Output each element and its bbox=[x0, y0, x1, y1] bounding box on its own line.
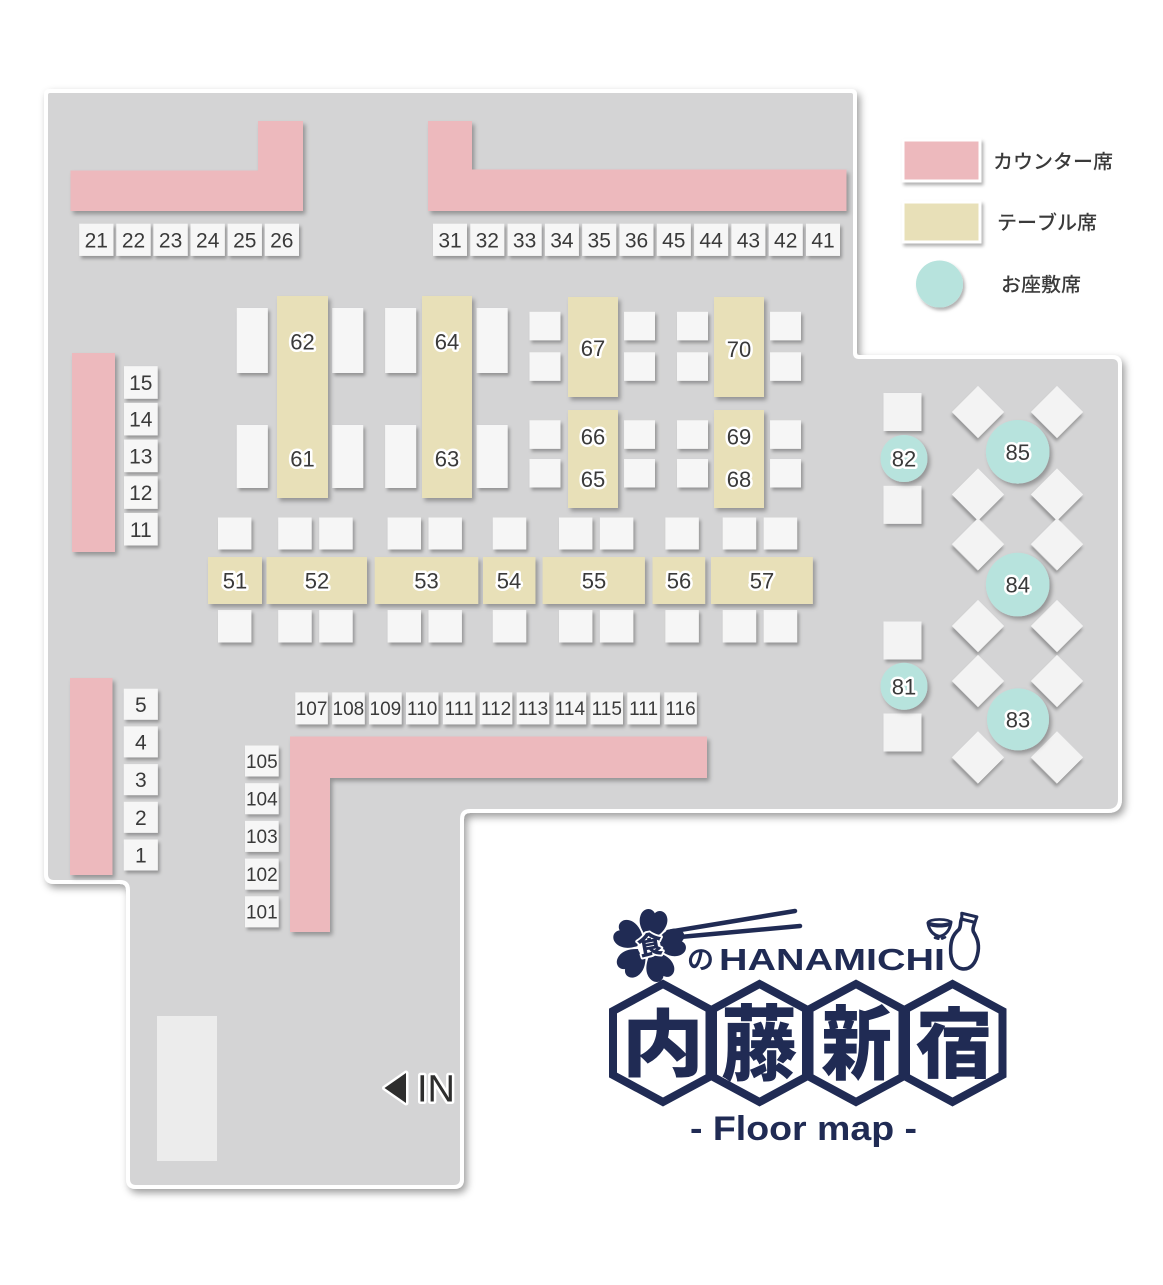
svg-text:81: 81 bbox=[892, 674, 916, 699]
svg-text:43: 43 bbox=[737, 229, 760, 252]
svg-text:62: 62 bbox=[290, 330, 314, 355]
svg-text:114: 114 bbox=[555, 699, 586, 720]
svg-text:11: 11 bbox=[130, 519, 152, 542]
svg-text:112: 112 bbox=[481, 699, 511, 720]
svg-text:52: 52 bbox=[305, 569, 329, 594]
svg-text:34: 34 bbox=[550, 229, 574, 252]
svg-text:23: 23 bbox=[159, 229, 182, 252]
svg-text:3: 3 bbox=[135, 769, 147, 792]
svg-text:HANAMICHI: HANAMICHI bbox=[719, 942, 945, 977]
svg-text:33: 33 bbox=[513, 229, 536, 252]
svg-text:111: 111 bbox=[445, 699, 474, 720]
svg-text:13: 13 bbox=[129, 445, 152, 468]
svg-text:54: 54 bbox=[497, 569, 521, 594]
svg-text:84: 84 bbox=[1005, 573, 1029, 598]
svg-text:42: 42 bbox=[774, 229, 797, 252]
svg-text:63: 63 bbox=[435, 447, 459, 472]
svg-text:105: 105 bbox=[246, 752, 278, 773]
svg-text:68: 68 bbox=[727, 467, 751, 492]
svg-text:107: 107 bbox=[296, 699, 328, 720]
svg-text:65: 65 bbox=[581, 467, 605, 492]
svg-text:113: 113 bbox=[518, 699, 548, 720]
svg-text:102: 102 bbox=[246, 865, 278, 886]
svg-text:36: 36 bbox=[625, 229, 648, 252]
svg-text:82: 82 bbox=[892, 447, 916, 472]
svg-text:24: 24 bbox=[196, 229, 220, 252]
svg-text:83: 83 bbox=[1006, 707, 1030, 732]
svg-text:14: 14 bbox=[129, 409, 153, 432]
svg-text:57: 57 bbox=[750, 569, 774, 594]
svg-text:2: 2 bbox=[135, 807, 147, 830]
svg-text:116: 116 bbox=[665, 699, 695, 720]
svg-text:111: 111 bbox=[629, 699, 658, 720]
svg-text:35: 35 bbox=[588, 229, 611, 252]
svg-text:22: 22 bbox=[122, 229, 145, 252]
svg-text:85: 85 bbox=[1005, 440, 1029, 465]
svg-text:115: 115 bbox=[592, 699, 622, 720]
svg-text:1: 1 bbox=[135, 845, 147, 868]
svg-text:103: 103 bbox=[246, 827, 278, 848]
svg-text:IN: IN bbox=[417, 1069, 455, 1111]
svg-text:69: 69 bbox=[727, 425, 751, 450]
svg-text:31: 31 bbox=[438, 229, 461, 252]
svg-text:51: 51 bbox=[223, 569, 247, 594]
svg-text:67: 67 bbox=[581, 336, 605, 361]
svg-text:4: 4 bbox=[135, 732, 147, 755]
svg-text:104: 104 bbox=[246, 790, 278, 811]
svg-text:55: 55 bbox=[582, 569, 606, 594]
svg-text:- Floor map -: - Floor map - bbox=[690, 1110, 917, 1148]
svg-text:109: 109 bbox=[370, 699, 402, 720]
svg-text:15: 15 bbox=[129, 372, 152, 395]
svg-text:5: 5 bbox=[135, 694, 147, 717]
svg-text:108: 108 bbox=[333, 699, 365, 720]
svg-text:61: 61 bbox=[290, 447, 314, 472]
svg-text:70: 70 bbox=[727, 337, 751, 362]
svg-text:53: 53 bbox=[414, 569, 438, 594]
svg-text:66: 66 bbox=[581, 425, 605, 450]
svg-text:41: 41 bbox=[811, 229, 834, 252]
svg-text:32: 32 bbox=[476, 229, 499, 252]
svg-text:110: 110 bbox=[407, 699, 437, 720]
svg-text:45: 45 bbox=[662, 229, 685, 252]
svg-text:101: 101 bbox=[246, 903, 278, 924]
svg-text:44: 44 bbox=[699, 229, 723, 252]
svg-text:21: 21 bbox=[85, 229, 108, 252]
svg-text:26: 26 bbox=[270, 229, 293, 252]
svg-text:56: 56 bbox=[667, 569, 691, 594]
svg-text:25: 25 bbox=[233, 229, 256, 252]
svg-text:12: 12 bbox=[129, 482, 152, 505]
svg-text:64: 64 bbox=[435, 330, 459, 355]
